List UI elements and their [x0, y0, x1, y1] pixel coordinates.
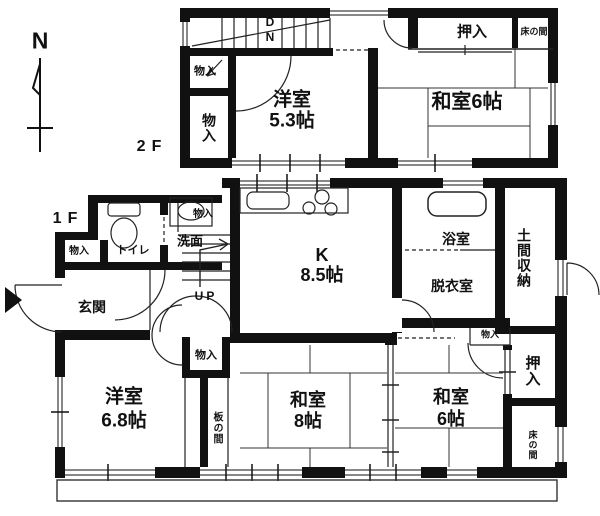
room-size-western-1f: 6.8帖: [101, 412, 146, 431]
toilet-label: トイレ: [117, 246, 150, 257]
oshiire-label-1f: 押入: [525, 355, 540, 387]
floor-plan-drawing: [0, 0, 600, 516]
dressing-room-label: 脱衣室: [431, 279, 473, 293]
entrance-marker-icon: [5, 287, 22, 313]
washroom-label: 洗面: [177, 235, 203, 248]
kitchen-label: K: [316, 246, 329, 264]
room-size-japanese8: 8帖: [294, 412, 322, 430]
earthen-storage-label: 土間収納: [517, 228, 531, 288]
room-label-western-2f: 洋室: [273, 91, 311, 110]
closet-label-hall: 物入: [195, 351, 217, 362]
room-label-japanese6: 和室: [433, 388, 469, 406]
oshiire-label-2f: 押入: [457, 25, 487, 40]
room-label-japanese8: 和室: [290, 391, 326, 409]
tokonoma-label-1f: 床の間: [528, 430, 537, 460]
stairs-down-label: DN: [264, 15, 276, 45]
room-label-western-1f: 洋室: [105, 388, 143, 407]
north-label: N: [32, 30, 49, 53]
floor-plan: N 2F 1F DN 物入 物入 洋室 5.3帖 押入 床の間 和室6帖 トイレ…: [0, 0, 600, 516]
north-arrow-icon: [27, 58, 53, 152]
closet-label-2f-lower: 物入: [202, 113, 216, 143]
floor1-label: 1F: [53, 211, 84, 227]
closet-label-top: 物入: [193, 210, 213, 220]
entrance-label: 玄関: [78, 300, 106, 314]
closet-label-entrance: 物入: [69, 247, 89, 257]
bathroom-label: 浴室: [442, 232, 470, 246]
floor2-label: 2F: [137, 139, 168, 155]
kitchen-size: 8.5帖: [300, 266, 343, 284]
room-size-japanese6: 6帖: [437, 410, 465, 428]
wooden-floor-label: 板の間: [211, 412, 221, 445]
room-size-western-2f: 5.3帖: [269, 112, 314, 131]
tokonoma-label-2f: 床の間: [520, 28, 547, 37]
floor1-walls: [55, 178, 567, 478]
closet-label-small: 物入: [481, 331, 499, 340]
closet-label-2f-upper: 物入: [194, 67, 216, 78]
stairs-up-label: UP: [195, 290, 218, 302]
room-label-japanese-2f: 和室6帖: [431, 92, 502, 112]
